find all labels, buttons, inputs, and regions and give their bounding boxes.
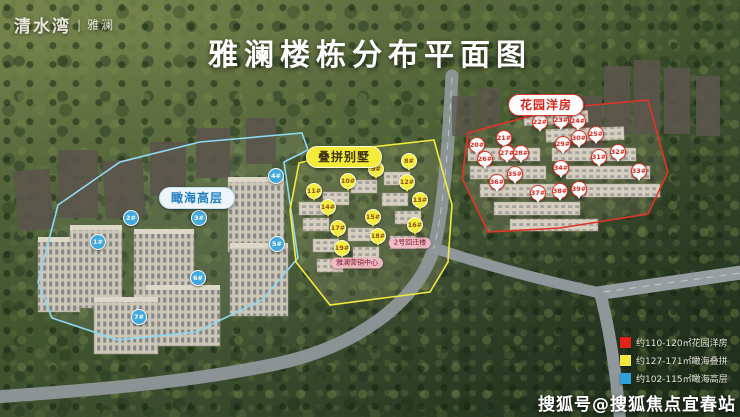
legend-row-2: 约102-115㎡瞰海高层 <box>620 372 728 385</box>
legend-text-1: 约127-171㎡瞰海叠拼 <box>636 354 728 367</box>
legend-swatch-2 <box>620 373 631 384</box>
zone-label-highrise: 瞰海高层 <box>159 187 235 209</box>
legend-swatch-1 <box>620 355 631 366</box>
watermark: 搜狐号@搜狐焦点宜春站 <box>538 390 736 415</box>
zone-label-garden: 花园洋房 <box>508 94 584 116</box>
page-title: 雅澜楼栋分布平面图 <box>0 30 740 74</box>
legend-row-1: 约127-171㎡瞰海叠拼 <box>620 354 728 367</box>
legend-row-0: 约110-120㎡花园洋房 <box>620 336 728 349</box>
legend-text-2: 约102-115㎡瞰海高层 <box>636 372 728 385</box>
poster: 1#2#3#4#5#6#7#8#9#10#11#12#13#14#15#16#1… <box>0 0 740 417</box>
zone-label-villa: 叠拼别墅 <box>306 146 382 168</box>
legend-text-0: 约110-120㎡花园洋房 <box>636 336 728 349</box>
legend: 约110-120㎡花园洋房约127-171㎡瞰海叠拼约102-115㎡瞰海高层 <box>620 336 728 385</box>
legend-swatch-0 <box>620 337 631 348</box>
